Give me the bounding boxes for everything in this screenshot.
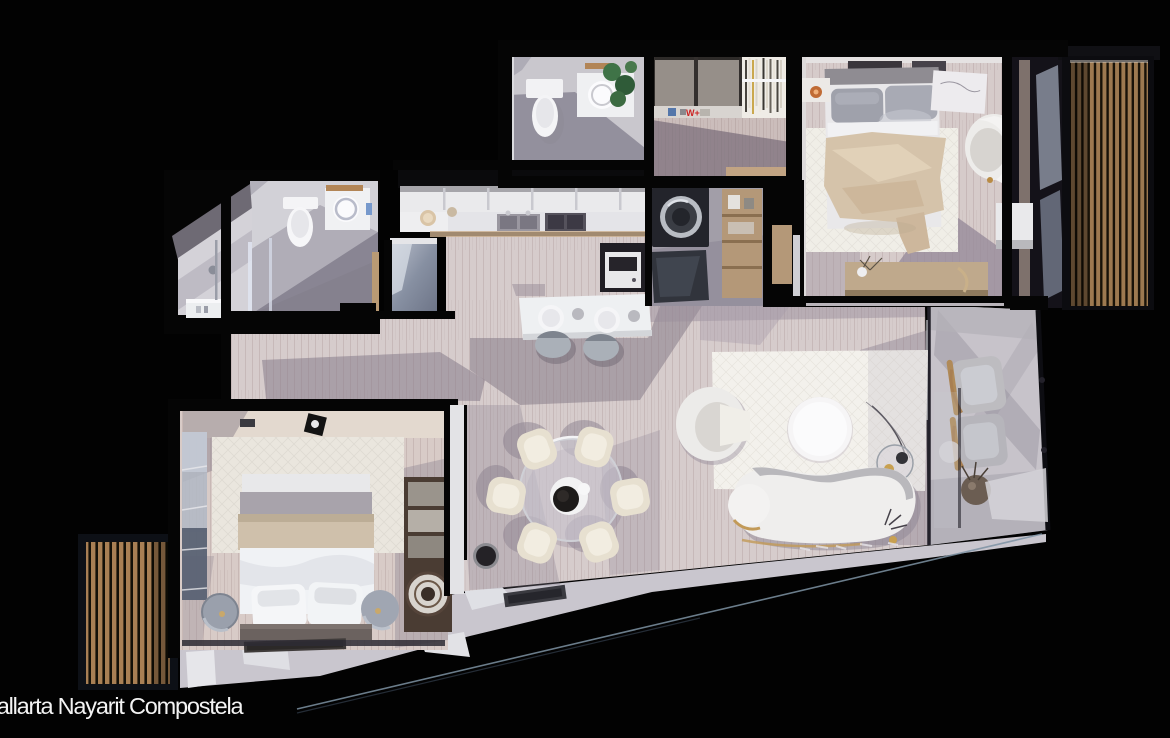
svg-text:W+: W+	[686, 108, 700, 118]
